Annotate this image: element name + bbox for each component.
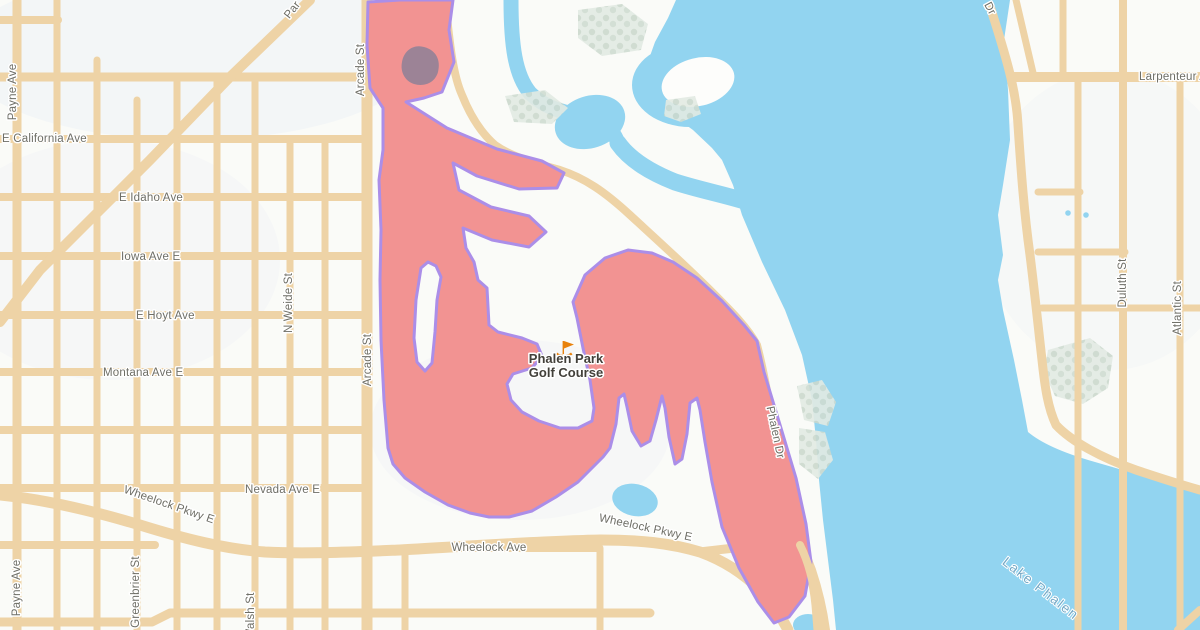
street-label-e-california-ave: E California Ave [2,133,87,145]
poi-label-line2: Golf Course [529,365,603,380]
street-label-duluth-st: Duluth St [1117,258,1129,308]
building-footprint [402,46,439,85]
street-label-arcade-st-mid: Arcade St [362,333,374,386]
street-label-n-walsh-st: N Walsh St [245,592,257,630]
street-label-montana-ave-e: Montana Ave E [103,367,184,379]
street-label-larpenteur-ave: Larpenteur Ave [1139,71,1200,83]
pond [1065,210,1071,216]
street-label-payne-ave-top: Payne Ave [7,64,19,121]
pond [1083,212,1089,218]
street-label-e-hoyt-ave: E Hoyt Ave [136,310,195,322]
street-label-n-weide-st: N Weide St [283,272,295,333]
street-label-nevada-ave-e: Nevada Ave E [245,484,320,496]
street-label-atlantic-st: Atlantic St [1172,280,1184,335]
street-label-wheelock-ave: Wheelock Ave [451,542,526,554]
street-label-greenbrier-st: Greenbrier St [130,556,142,628]
street-label-arcade-st-top: Arcade St [355,43,367,96]
street-label-iowa-ave-e: Iowa Ave E [121,251,180,263]
street-label-payne-ave-bottom: Payne Ave [11,560,23,617]
poi-label-line1: Phalen Park [529,351,604,366]
map-canvas[interactable]: Payne Ave Payne Ave E California Ave E I… [0,0,1200,630]
map-viewport[interactable]: Payne Ave Payne Ave E California Ave E I… [0,0,1200,630]
street-label-e-idaho-ave: E Idaho Ave [119,192,183,204]
